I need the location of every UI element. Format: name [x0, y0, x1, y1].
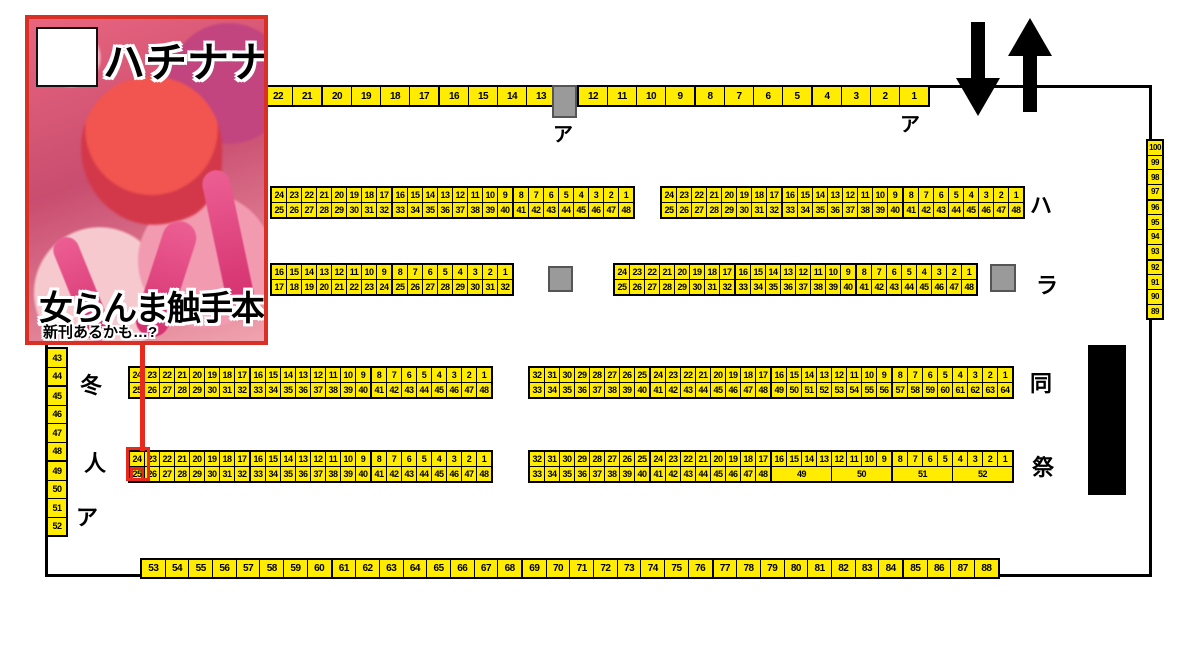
seat-52: 52 [817, 383, 832, 397]
seat-47: 47 [604, 203, 619, 217]
seat-44: 44 [559, 203, 574, 217]
seat-8: 8 [372, 368, 387, 383]
seat-36: 36 [828, 203, 843, 217]
seat-18: 18 [220, 368, 235, 383]
seat-5: 5 [938, 368, 953, 383]
seat-19: 19 [347, 188, 362, 203]
seat-35: 35 [560, 467, 575, 481]
seat-8: 8 [893, 452, 908, 467]
seat-40: 40 [841, 280, 855, 294]
seat-23: 23 [287, 188, 302, 203]
seat-37: 37 [590, 383, 605, 397]
seat-20: 20 [722, 188, 737, 203]
seat-4: 4 [964, 188, 979, 203]
seat-63: 63 [983, 383, 998, 397]
seat-7: 7 [725, 87, 754, 105]
seat-53: 53 [832, 383, 847, 397]
seat-block-ha-right: 2423222120191817161514131211109876543212… [660, 186, 1025, 219]
seat-71: 71 [570, 560, 594, 577]
seat-3: 3 [968, 452, 983, 467]
seat-6: 6 [544, 188, 559, 203]
seat-96: 96 [1148, 201, 1162, 216]
seat-43: 43 [681, 383, 696, 397]
seat-39: 39 [826, 280, 841, 294]
seat-35: 35 [423, 203, 438, 217]
seat-48: 48 [477, 383, 491, 397]
seat-40: 40 [356, 383, 370, 397]
seat-45: 45 [964, 203, 979, 217]
seat-8: 8 [372, 452, 387, 467]
seat-block-ra-left: 1615141312111098765432117181920212223242… [270, 263, 514, 296]
seat-48: 48 [477, 467, 491, 481]
seat-9: 9 [356, 368, 370, 383]
seat-2: 2 [871, 87, 900, 105]
seat-84: 84 [879, 560, 902, 577]
seat-12: 12 [579, 87, 608, 105]
seat-4: 4 [574, 188, 589, 203]
seat-8: 8 [393, 265, 408, 280]
seat-block-dou-left: 2423222120191817161514131211109876543212… [128, 366, 493, 399]
seat-30: 30 [205, 383, 220, 397]
seat-52: 52 [48, 518, 66, 536]
seat-5: 5 [417, 452, 432, 467]
seat-38: 38 [326, 467, 341, 481]
seat-57: 57 [237, 560, 261, 577]
seat-3: 3 [447, 368, 462, 383]
seat-13: 13 [828, 188, 843, 203]
seat-38: 38 [858, 203, 873, 217]
pillar-mid-right [990, 264, 1016, 292]
seat-13: 13 [438, 188, 453, 203]
seat-17: 17 [756, 452, 770, 467]
seat-20: 20 [332, 188, 347, 203]
seat-52: 52 [953, 467, 1012, 481]
seat-78: 78 [737, 560, 761, 577]
seat-42: 42 [666, 467, 681, 481]
seat-6: 6 [754, 87, 783, 105]
seat-34: 34 [545, 383, 560, 397]
seat-28: 28 [438, 280, 453, 294]
seat-17: 17 [410, 87, 438, 105]
seat-45: 45 [711, 467, 726, 481]
seat-32: 32 [377, 203, 391, 217]
seat-58: 58 [908, 383, 923, 397]
seat-43: 43 [887, 280, 902, 294]
seat-5: 5 [902, 265, 917, 280]
seat-1: 1 [900, 87, 928, 105]
seat-13: 13 [296, 368, 311, 383]
seat-19: 19 [726, 368, 741, 383]
seat-32: 32 [720, 280, 734, 294]
seat-21: 21 [707, 188, 722, 203]
seat-15: 15 [751, 265, 766, 280]
seat-29: 29 [453, 280, 468, 294]
seat-23: 23 [666, 368, 681, 383]
seat-9: 9 [888, 188, 902, 203]
seat-13: 13 [296, 452, 311, 467]
seat-29: 29 [332, 203, 347, 217]
seat-1: 1 [998, 368, 1012, 383]
seat-18: 18 [705, 265, 720, 280]
seat-7: 7 [408, 265, 423, 280]
seat-7: 7 [529, 188, 544, 203]
seat-28: 28 [590, 368, 605, 383]
seat-22: 22 [681, 368, 696, 383]
seat-9: 9 [841, 265, 855, 280]
seat-17: 17 [720, 265, 734, 280]
seat-18: 18 [287, 280, 302, 294]
seat-block-sai-left: 2423222120191817161514131211109876543212… [128, 450, 493, 483]
label-left-hito: 人 [84, 446, 106, 478]
seat-61: 61 [333, 560, 357, 577]
seat-77: 77 [714, 560, 738, 577]
seat-22: 22 [160, 452, 175, 467]
seat-30: 30 [737, 203, 752, 217]
seat-41: 41 [904, 203, 919, 217]
seat-32: 32 [235, 383, 249, 397]
label-left-fuyu: 冬 [80, 368, 102, 400]
seat-59: 59 [284, 560, 308, 577]
seat-99: 99 [1148, 156, 1162, 171]
seat-21: 21 [332, 280, 347, 294]
seat-33: 33 [251, 467, 266, 481]
seat-19: 19 [302, 280, 317, 294]
seat-48: 48 [1009, 203, 1023, 217]
seat-33: 33 [251, 383, 266, 397]
seat-34: 34 [545, 467, 560, 481]
seat-13: 13 [527, 87, 555, 105]
seat-47: 47 [741, 467, 756, 481]
seat-49: 49 [48, 462, 66, 481]
seat-4: 4 [432, 452, 447, 467]
cover-art [81, 77, 222, 225]
seat-9: 9 [356, 452, 370, 467]
seat-87: 87 [951, 560, 975, 577]
seat-34: 34 [798, 203, 813, 217]
seat-44: 44 [949, 203, 964, 217]
seat-19: 19 [737, 188, 752, 203]
seat-26: 26 [620, 368, 635, 383]
seat-21: 21 [175, 368, 190, 383]
arrow-down-icon [956, 22, 1000, 118]
seat-19: 19 [205, 452, 220, 467]
seat-28: 28 [175, 467, 190, 481]
seat-49: 49 [772, 383, 787, 397]
seat-19: 19 [690, 265, 705, 280]
seat-13: 13 [817, 452, 832, 467]
seat-14: 14 [423, 188, 438, 203]
seat-69: 69 [523, 560, 547, 577]
seat-7: 7 [387, 368, 402, 383]
seat-22: 22 [302, 188, 317, 203]
seat-50: 50 [787, 383, 802, 397]
seat-33: 33 [530, 467, 545, 481]
seat-24: 24 [377, 280, 391, 294]
seat-40: 40 [635, 383, 649, 397]
seat-76: 76 [689, 560, 712, 577]
seat-12: 12 [796, 265, 811, 280]
seat-23: 23 [630, 265, 645, 280]
seat-16: 16 [251, 368, 266, 383]
seat-31: 31 [545, 368, 560, 383]
seat-15: 15 [469, 87, 498, 105]
seat-17: 17 [235, 452, 249, 467]
seat-10: 10 [341, 452, 356, 467]
seat-92: 92 [1148, 261, 1162, 276]
seat-38: 38 [326, 383, 341, 397]
seat-66: 66 [451, 560, 475, 577]
seat-8: 8 [514, 188, 529, 203]
seat-19: 19 [352, 87, 381, 105]
seat-32: 32 [767, 203, 781, 217]
seat-1: 1 [498, 265, 512, 280]
seat-3: 3 [842, 87, 871, 105]
seat-33: 33 [530, 383, 545, 397]
seat-89: 89 [1148, 305, 1162, 319]
seat-50: 50 [48, 481, 66, 500]
seat-56: 56 [213, 560, 237, 577]
seat-11: 11 [847, 452, 862, 467]
seat-11: 11 [347, 265, 362, 280]
seat-5: 5 [938, 452, 953, 467]
seat-16: 16 [772, 452, 787, 467]
seat-25: 25 [272, 203, 287, 217]
seat-29: 29 [675, 280, 690, 294]
pillar-mid-left [548, 266, 573, 292]
seat-28: 28 [660, 280, 675, 294]
seat-30: 30 [205, 467, 220, 481]
seat-18: 18 [741, 452, 756, 467]
seat-16: 16 [251, 452, 266, 467]
seat-5: 5 [438, 265, 453, 280]
seat-1: 1 [962, 265, 976, 280]
seat-6: 6 [934, 188, 949, 203]
seat-8: 8 [893, 368, 908, 383]
seat-31: 31 [483, 280, 498, 294]
seat-18: 18 [220, 452, 235, 467]
seat-18: 18 [741, 368, 756, 383]
seat-12: 12 [311, 368, 326, 383]
seat-41: 41 [372, 383, 387, 397]
seat-48: 48 [619, 203, 633, 217]
seat-47: 47 [48, 424, 66, 443]
seat-67: 67 [475, 560, 499, 577]
seat-19: 19 [205, 368, 220, 383]
event-floor-map: 22212019181716151413 121110987654321 ア ア… [0, 0, 1200, 648]
seat-11: 11 [811, 265, 826, 280]
seat-6: 6 [923, 452, 938, 467]
seat-48: 48 [756, 383, 770, 397]
seat-25: 25 [393, 280, 408, 294]
label-row-ha: ハ [1030, 188, 1052, 220]
seat-16: 16 [736, 265, 751, 280]
seat-11: 11 [847, 368, 862, 383]
seat-16: 16 [272, 265, 287, 280]
seat-24: 24 [272, 188, 287, 203]
seat-17: 17 [272, 280, 287, 294]
seat-13: 13 [317, 265, 332, 280]
seat-24: 24 [662, 188, 677, 203]
seat-46: 46 [979, 203, 994, 217]
seat-14: 14 [302, 265, 317, 280]
seat-36: 36 [575, 383, 590, 397]
seat-16: 16 [393, 188, 408, 203]
seat-2: 2 [947, 265, 962, 280]
seat-12: 12 [453, 188, 468, 203]
seat-13: 13 [817, 368, 832, 383]
seat-11: 11 [326, 452, 341, 467]
seat-29: 29 [190, 467, 205, 481]
seat-2: 2 [983, 452, 998, 467]
seat-10: 10 [873, 188, 888, 203]
seat-27: 27 [160, 467, 175, 481]
seat-34: 34 [408, 203, 423, 217]
seat-42: 42 [387, 383, 402, 397]
seat-17: 17 [767, 188, 781, 203]
seat-17: 17 [377, 188, 391, 203]
seat-39: 39 [341, 467, 356, 481]
seat-34: 34 [266, 467, 281, 481]
seat-37: 37 [311, 383, 326, 397]
seat-27: 27 [605, 368, 620, 383]
seat-21: 21 [696, 368, 711, 383]
seat-40: 40 [635, 467, 649, 481]
seat-14: 14 [802, 452, 817, 467]
stage-block [1088, 345, 1126, 495]
seat-row-a-right: 121110987654321 [577, 85, 930, 107]
seat-24: 24 [651, 368, 666, 383]
seat-15: 15 [266, 452, 281, 467]
seat-35: 35 [281, 383, 296, 397]
seat-row-a-left: 22212019181716151413 [262, 85, 557, 107]
seat-31: 31 [545, 452, 560, 467]
seat-32: 32 [530, 452, 545, 467]
seat-9: 9 [877, 368, 891, 383]
seat-9: 9 [377, 265, 391, 280]
seat-27: 27 [605, 452, 620, 467]
seat-29: 29 [722, 203, 737, 217]
seat-37: 37 [843, 203, 858, 217]
seat-27: 27 [423, 280, 438, 294]
seat-10: 10 [637, 87, 666, 105]
seat-32: 32 [530, 368, 545, 383]
seat-33: 33 [783, 203, 798, 217]
seat-1: 1 [477, 368, 491, 383]
seat-30: 30 [560, 368, 575, 383]
seat-1: 1 [998, 452, 1012, 467]
seat-15: 15 [798, 188, 813, 203]
seat-18: 18 [752, 188, 767, 203]
seat-20: 20 [711, 368, 726, 383]
label-left-a: ア [76, 500, 98, 532]
seat-45: 45 [711, 383, 726, 397]
seat-2: 2 [462, 368, 477, 383]
seat-43: 43 [681, 467, 696, 481]
seat-2: 2 [604, 188, 619, 203]
seat-26: 26 [630, 280, 645, 294]
seat-59: 59 [923, 383, 938, 397]
seat-4: 4 [953, 452, 968, 467]
seat-30: 30 [347, 203, 362, 217]
seat-57: 57 [893, 383, 908, 397]
seat-29: 29 [190, 383, 205, 397]
seat-54: 54 [166, 560, 190, 577]
seat-39: 39 [341, 383, 356, 397]
seat-10: 10 [862, 452, 877, 467]
seat-31: 31 [362, 203, 377, 217]
seat-7: 7 [872, 265, 887, 280]
seat-8: 8 [904, 188, 919, 203]
seat-48: 48 [962, 280, 976, 294]
label-row-a-right: ア [900, 108, 920, 137]
seat-73: 73 [618, 560, 642, 577]
seat-58: 58 [260, 560, 284, 577]
seat-14: 14 [802, 368, 817, 383]
seat-29: 29 [575, 368, 590, 383]
label-row-sai: 祭 [1032, 450, 1054, 482]
label-row-ra: ラ [1036, 268, 1058, 300]
seat-86: 86 [928, 560, 952, 577]
seat-44: 44 [902, 280, 917, 294]
seat-38: 38 [811, 280, 826, 294]
seat-7: 7 [387, 452, 402, 467]
seat-6: 6 [402, 452, 417, 467]
seat-12: 12 [311, 452, 326, 467]
seat-29: 29 [575, 452, 590, 467]
seat-17: 17 [756, 368, 770, 383]
seat-64: 64 [404, 560, 428, 577]
seat-42: 42 [529, 203, 544, 217]
seat-79: 79 [761, 560, 785, 577]
seat-9: 9 [666, 87, 694, 105]
seat-8: 8 [857, 265, 872, 280]
seat-37: 37 [311, 467, 326, 481]
seat-25: 25 [635, 452, 649, 467]
seat-60: 60 [938, 383, 953, 397]
seat-45: 45 [917, 280, 932, 294]
seat-24: 24 [615, 265, 630, 280]
seat-1: 1 [477, 452, 491, 467]
seat-28: 28 [175, 383, 190, 397]
seat-10: 10 [483, 188, 498, 203]
seat-4: 4 [953, 368, 968, 383]
seat-12: 12 [832, 452, 847, 467]
seat-93: 93 [1148, 245, 1162, 259]
seat-37: 37 [796, 280, 811, 294]
seat-70: 70 [547, 560, 571, 577]
seat-43: 43 [544, 203, 559, 217]
arrow-up-icon [1008, 16, 1052, 112]
seat-25: 25 [635, 368, 649, 383]
seat-42: 42 [919, 203, 934, 217]
seat-5: 5 [417, 368, 432, 383]
seat-63: 63 [380, 560, 404, 577]
seat-14: 14 [281, 368, 296, 383]
seat-23: 23 [362, 280, 377, 294]
seat-44: 44 [696, 467, 711, 481]
seat-55: 55 [189, 560, 213, 577]
seat-40: 40 [356, 467, 370, 481]
seat-25: 25 [662, 203, 677, 217]
seat-19: 19 [726, 452, 741, 467]
seat-45: 45 [574, 203, 589, 217]
seat-61: 61 [953, 383, 968, 397]
seat-41: 41 [651, 383, 666, 397]
seat-46: 46 [726, 383, 741, 397]
seat-14: 14 [281, 452, 296, 467]
seat-22: 22 [264, 87, 293, 105]
seat-20: 20 [190, 452, 205, 467]
